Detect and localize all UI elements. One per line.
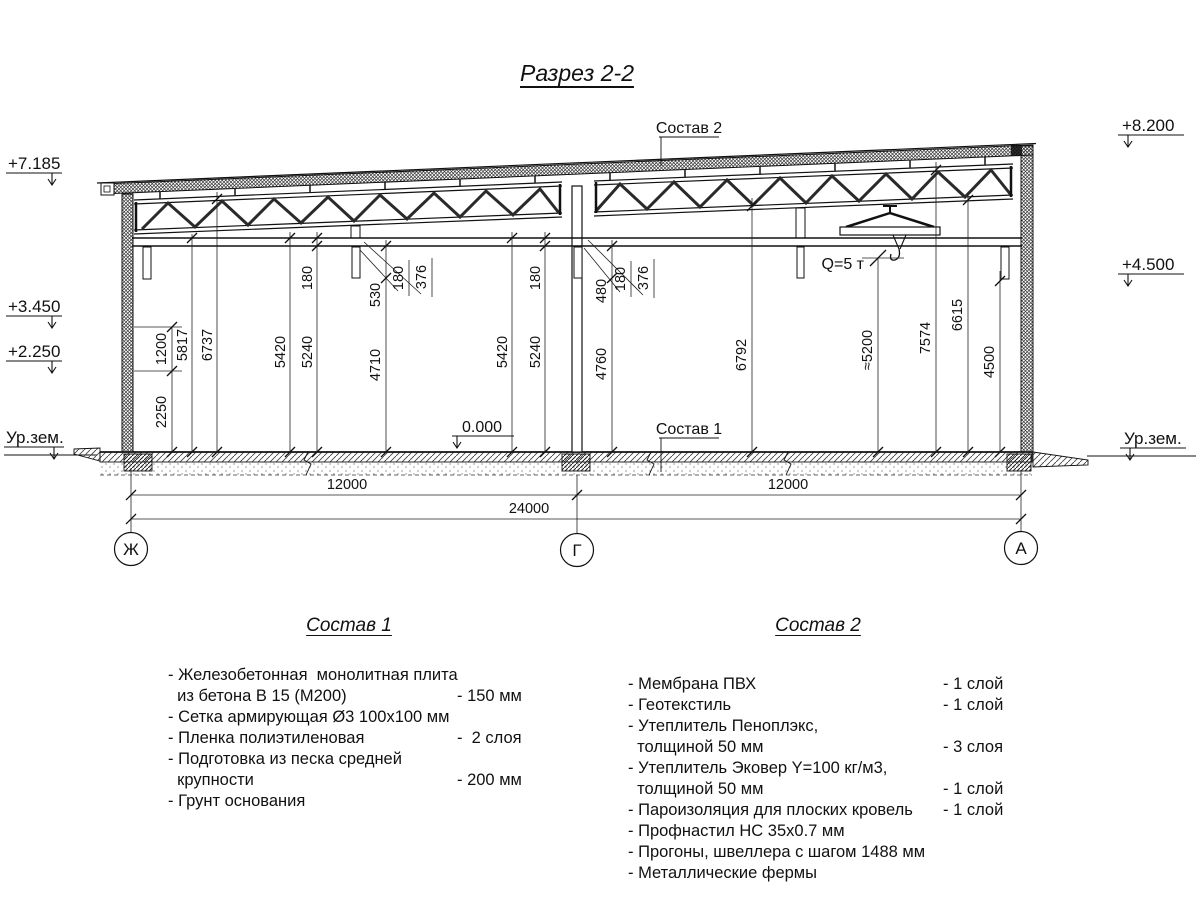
dim-4760: 4760 [594,348,610,380]
right-wall [1021,146,1033,452]
dim-4500: 4500 [982,346,998,378]
bracket-5 [1001,247,1009,279]
elevation-mark: +2.250 [8,342,60,361]
ground-floor [4,448,1196,475]
foundation-right [1007,454,1031,471]
center-column [572,186,582,452]
material-row: - Пленка полиэтиленовая- 2 слоя [168,728,530,749]
bracket-2 [352,247,360,278]
material-row: - Профнастил НС 35x0.7 мм [628,821,1008,842]
dim-4710: 4710 [368,349,384,381]
sostav2-callout: Состав 2 [656,120,722,137]
elevation-mark: +4.500 [1122,255,1174,274]
material-row: - Пароизоляция для плоских кровель- 1 сл… [628,800,1008,821]
material-row: из бетона В 15 (М200)- 150 мм [168,686,530,707]
material-row: - Геотекстиль- 1 слой [628,695,1008,716]
sostav1-title: Состав 1 [168,615,530,636]
dim-6737: 6737 [200,329,216,361]
walls-roof [97,144,1036,453]
material-row: толщиной 50 мм- 1 слой [628,779,1008,800]
crane-hoist [840,206,940,260]
ground-level-mark: Ур.зем. [6,428,64,447]
horizontal-dimensions [131,468,1021,533]
sostav1-callout: Состав 1 [656,421,722,438]
section-drawing: +7.185 +3.450 +2.250 Ур.зем. +8.200 +4.5… [0,0,1200,600]
dim-530: 530 [368,283,384,307]
right-apron [1033,452,1088,467]
dim-1200: 1200 [154,333,170,365]
vertical-dimensions [134,162,1000,452]
grid-label-g: Г [572,541,581,560]
sostav2-title: Состав 2 [628,615,1008,636]
bracket-1 [143,247,151,279]
dim-6615: 6615 [950,299,966,331]
callout-180-left: 180 [391,266,407,290]
columns-beam [132,186,1022,452]
material-row: - Утеплитель Пеноплэкс, [628,716,1008,737]
material-row: - Сетка армирующая Ø3 100x100 мм [168,707,530,728]
dim-12000-bay1: 12000 [327,477,367,493]
zero-level-mark: 0.000 [462,419,502,436]
crane-hook-icon [891,249,900,260]
dim-5420-center: 5420 [495,336,511,368]
dimension-ticks [167,165,1005,457]
dim-180-left: 180 [300,266,316,290]
material-row: - Железобетонная монолитная плита [168,665,530,686]
foundation-left [124,454,152,471]
bracket-4 [797,247,804,278]
dim-12000-bay2: 12000 [768,477,808,493]
left-wall [122,194,133,452]
elevation-mark: +3.450 [8,297,60,316]
dim-7574: 7574 [918,322,934,354]
roof-deck [102,145,1033,194]
ground-level-mark: Ур.зем. [1124,429,1182,448]
sostav1-section: Состав 1 - Железобетонная монолитная пли… [168,615,530,812]
dim-5240-left: 5240 [300,336,316,368]
bracket-3 [574,247,582,278]
material-row: - Прогоны, швеллера с шагом 1488 мм [628,842,1008,863]
drawing-page: Разрез 2-2 [0,0,1200,900]
grid-label-zh: Ж [123,540,139,559]
material-row: - Мембрана ПВХ- 1 слой [628,674,1008,695]
material-row: - Грунт основания [168,791,530,812]
callout-376-center: 376 [636,266,652,290]
dim-5817: 5817 [175,329,191,361]
dim-5200: ≈5200 [860,330,876,370]
material-row: - Подготовка из песка средней [168,749,530,770]
callout-180-center: 180 [613,267,629,291]
left-apron [74,448,100,461]
grid-bubbles: Ж Г А [115,532,1038,567]
dim-5240-center: 5240 [528,336,544,368]
dim-2250: 2250 [154,396,170,428]
callout-376-left: 376 [414,265,430,289]
elevation-mark: +8.200 [1122,116,1174,135]
dim-24000-total: 24000 [509,501,549,517]
material-row: - Металлические фермы [628,863,1008,884]
material-row: крупности- 200 мм [168,770,530,791]
dim-6792: 6792 [734,339,750,371]
foundation-center [562,454,590,471]
sostav2-section: Состав 2 - Мембрана ПВХ- 1 слой - Геотек… [628,615,1008,884]
dim-480: 480 [594,279,610,303]
material-row: толщиной 50 мм- 3 слоя [628,737,1008,758]
grid-label-a: А [1015,539,1027,558]
dim-180-center: 180 [528,266,544,290]
dim-5420-left: 5420 [273,336,289,368]
material-row: - Утеплитель Эковер Y=100 кг/м3, [628,758,1008,779]
crane-capacity-label: Q=5 т [822,256,865,273]
elevation-mark: +7.185 [8,154,60,173]
